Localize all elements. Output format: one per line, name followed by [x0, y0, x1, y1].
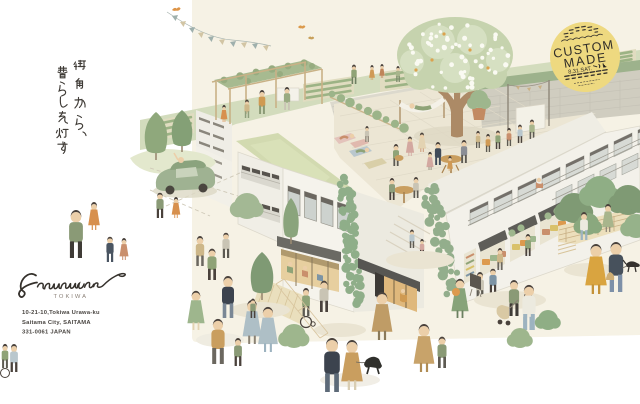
svg-text:Saitama City, SAITAMA: Saitama City, SAITAMA [22, 320, 91, 326]
svg-text:TOKIWA: TOKIWA [54, 294, 89, 300]
svg-text:10-21-10,Tokiwa Urawa-ku: 10-21-10,Tokiwa Urawa-ku [22, 310, 100, 316]
svg-text:331-0061 JAPAN: 331-0061 JAPAN [22, 330, 71, 336]
